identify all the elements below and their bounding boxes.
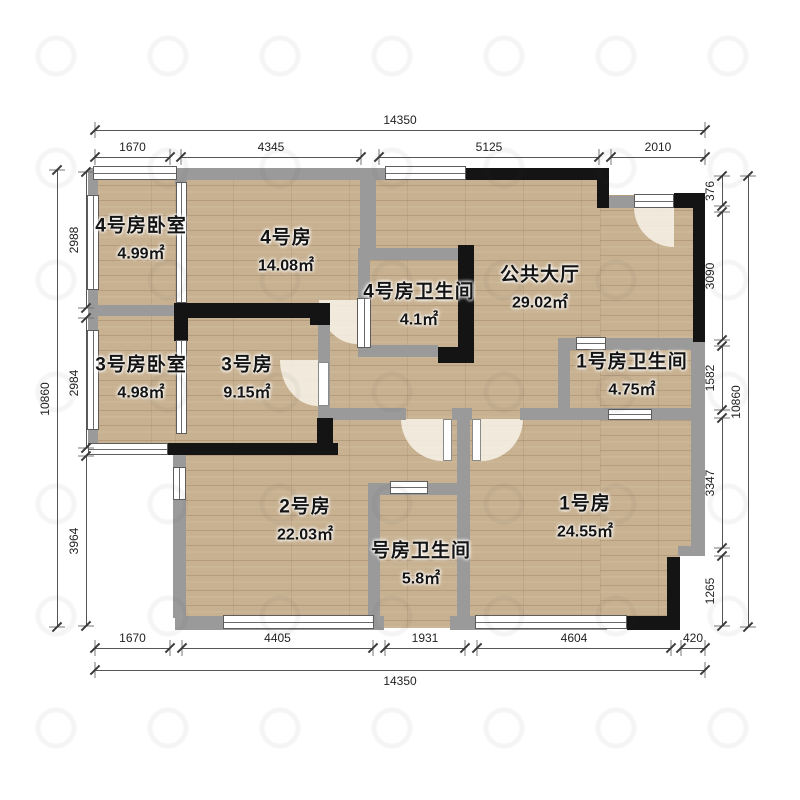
room-label-bedroom-4: 4号房卧室4.99㎡: [95, 211, 187, 264]
window: [475, 615, 627, 629]
room2-door-leaf: [443, 419, 452, 461]
dim-value: 5125: [476, 140, 503, 154]
wall-structural: [438, 347, 474, 363]
room3-door-leaf: [318, 362, 329, 406]
bath-hall-door: [390, 481, 428, 494]
entry-door-leaf: [634, 194, 674, 208]
dim-line: [86, 172, 87, 308]
dim-value: 376: [703, 181, 717, 201]
room1-door-leaf: [472, 419, 481, 461]
room-name: 4号房卧室: [95, 211, 187, 238]
room-name: 1号房卫生间: [576, 347, 688, 374]
room-area: 24.55㎡: [557, 518, 613, 542]
room-area: 14.08㎡: [258, 252, 314, 276]
room-name: 3号房卧室: [95, 350, 187, 377]
room-area: 22.03㎡: [277, 521, 333, 545]
room-label-room-2: 2号房22.03㎡: [277, 492, 333, 545]
wall: [558, 340, 570, 420]
dim-line: [611, 157, 705, 158]
dim-line: [722, 418, 723, 548]
dim-line: [57, 170, 58, 627]
dim-line: [722, 176, 723, 206]
dim-value: 10860: [729, 385, 743, 418]
wall-structural: [165, 443, 338, 455]
room-name: 2号房: [277, 492, 333, 519]
dim-value: 14350: [383, 674, 416, 688]
dim-value: 14350: [383, 113, 416, 127]
room-area: 4.1㎡: [363, 306, 475, 330]
room-name: 公共大厅: [500, 260, 580, 287]
dim-value: 420: [683, 631, 703, 645]
dim-line: [95, 648, 170, 649]
wall: [360, 178, 376, 252]
room-label-public-hall: 公共大厅29.02㎡: [500, 260, 580, 313]
wall: [678, 546, 705, 556]
dim-line: [95, 130, 705, 131]
dim-line: [181, 157, 361, 158]
room-name: 3号房: [221, 350, 273, 377]
dim-line: [748, 176, 749, 627]
room-area: 9.15㎡: [221, 379, 273, 403]
dim-line: [477, 648, 671, 649]
room-label-bedroom-3: 3号房卧室4.98㎡: [95, 350, 187, 403]
dim-value: 2984: [67, 370, 81, 397]
dim-value: 1265: [703, 578, 717, 605]
dim-value: 4405: [264, 631, 291, 645]
dim-value: 10860: [38, 382, 52, 415]
dim-line: [95, 157, 170, 158]
room-label-bath-4: 4号房卫生间4.1㎡: [363, 277, 475, 330]
dim-value: 1670: [119, 631, 146, 645]
window: [93, 166, 177, 180]
room-area: 4.98㎡: [95, 379, 187, 403]
room-area: 4.99㎡: [95, 240, 187, 264]
wall-structural: [174, 303, 188, 341]
dim-line: [385, 648, 465, 649]
wall-structural: [176, 303, 330, 318]
dim-value: 3347: [703, 470, 717, 497]
dim-line: [379, 157, 599, 158]
room-label-room-3: 3号房9.15㎡: [221, 350, 273, 403]
wall-structural: [317, 418, 333, 445]
window: [385, 166, 466, 180]
wall: [88, 305, 185, 316]
dim-line: [722, 556, 723, 626]
window: [88, 443, 168, 455]
floor-plan: 4号房卧室4.99㎡4号房14.08㎡4号房卫生间4.1㎡公共大厅29.02㎡3…: [0, 0, 800, 800]
window: [223, 615, 374, 629]
room-label-room-1: 1号房24.55㎡: [557, 489, 613, 542]
dim-value: 1670: [119, 140, 146, 154]
dim-line: [182, 648, 373, 649]
dim-value: 2010: [645, 140, 672, 154]
dim-line: [86, 456, 87, 626]
room-label-room-4: 4号房14.08㎡: [258, 223, 314, 276]
wall: [457, 408, 470, 628]
dim-value: 1582: [703, 365, 717, 392]
dim-line: [722, 212, 723, 340]
room-area: 4.75㎡: [576, 376, 688, 400]
dim-value: 3090: [703, 263, 717, 290]
dim-value: 2988: [67, 227, 81, 254]
room-area: 29.02㎡: [500, 289, 580, 313]
dim-value: 4604: [561, 631, 588, 645]
dim-line: [722, 346, 723, 410]
wall-structural: [310, 303, 330, 325]
room-area: 5.8㎡: [371, 565, 471, 589]
wall-structural: [597, 168, 609, 208]
room-label-bath-hall: 号房卫生间5.8㎡: [371, 536, 471, 589]
dim-value: 1931: [412, 631, 439, 645]
wall-structural: [627, 616, 680, 630]
dim-line: [95, 670, 705, 671]
window: [608, 409, 652, 420]
window: [173, 467, 186, 500]
room-label-bath-1: 1号房卫生间4.75㎡: [576, 347, 688, 400]
room-name: 4号房: [258, 223, 314, 250]
dim-value: 3964: [67, 528, 81, 555]
wall: [520, 408, 558, 420]
room-name: 1号房: [557, 489, 613, 516]
room-name: 号房卫生间: [371, 536, 471, 563]
dim-value: 4345: [258, 140, 285, 154]
dim-line: [86, 318, 87, 448]
room-name: 4号房卫生间: [363, 277, 475, 304]
wall-structural: [466, 168, 607, 180]
